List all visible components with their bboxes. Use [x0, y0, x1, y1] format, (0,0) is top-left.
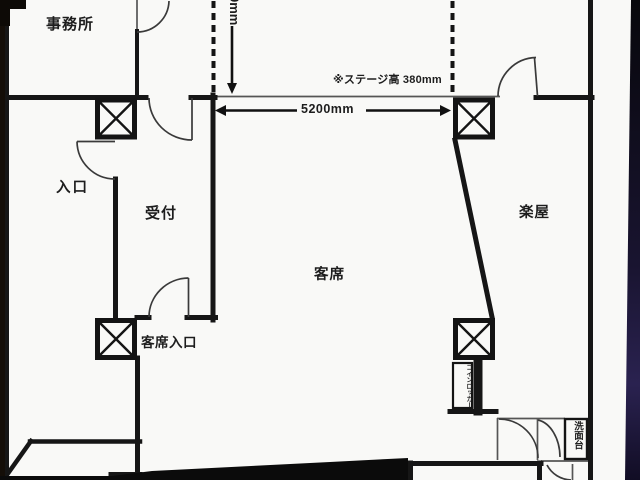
column-bottom-right — [456, 321, 493, 358]
label-office: 事務所 — [46, 17, 94, 32]
paper-background — [0, 0, 640, 480]
photo-edge-left — [0, 0, 5, 480]
label-vertical-dimension-cutoff: 0mm — [228, 0, 241, 25]
label-reception: 受付 — [145, 206, 177, 221]
column-top-left — [98, 100, 135, 137]
label-audience-entrance: 客席入口 — [141, 336, 197, 350]
column-bottom-left — [98, 321, 135, 358]
label-dressing-room: 楽屋 — [519, 206, 550, 221]
label-stage-width-dimension: 5200mm — [301, 103, 354, 116]
label-audience-seating: 客席 — [314, 268, 345, 283]
floor-plan-drawing — [0, 0, 640, 480]
label-coin-locker: コインロッカー — [454, 364, 473, 408]
label-stage-height-note: ※ステージ高 380mm — [333, 75, 442, 86]
label-washstand: 洗面台 — [567, 421, 587, 459]
column-top-right — [456, 100, 493, 137]
photo-edge-corner-top — [0, 0, 26, 9]
label-entrance: 入口 — [56, 181, 89, 196]
floor-plan-photo: 事務所 入口 受付 客席入口 客席 楽屋 ※ステージ高 380mm 5200mm… — [0, 0, 640, 480]
photo-edge-corner-side — [0, 9, 10, 26]
